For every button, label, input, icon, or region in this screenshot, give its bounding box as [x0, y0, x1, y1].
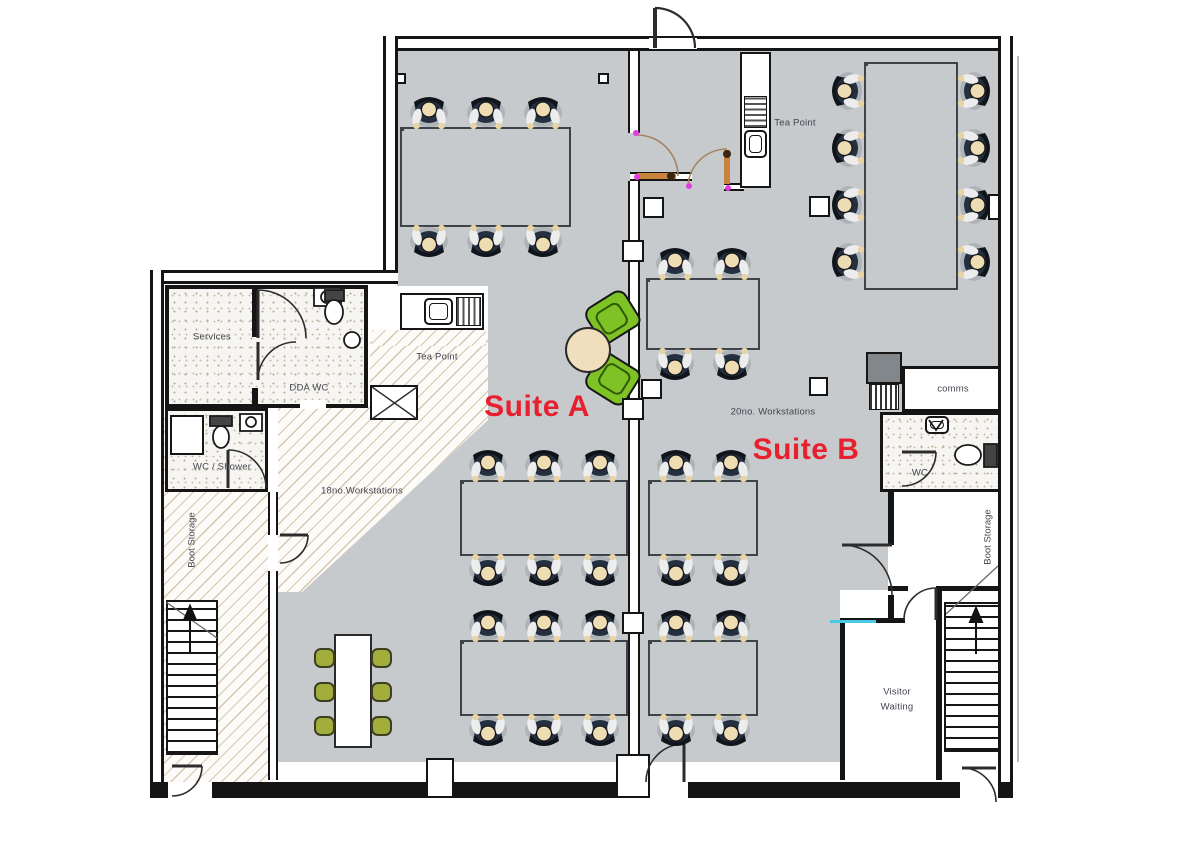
person-at-workstation: [522, 708, 566, 748]
person-icon: [709, 708, 753, 748]
person-at-workstation: [709, 608, 753, 648]
person-at-workstation: [464, 95, 508, 135]
person-at-workstation: [952, 240, 992, 284]
person-icon: [407, 95, 451, 135]
person-at-workstation: [952, 126, 992, 170]
label-suite-b: Suite B: [753, 433, 860, 467]
workstation-desk: [650, 482, 652, 484]
label-boot-storage-left: Boot Storage: [187, 512, 198, 567]
person-icon: [830, 69, 870, 113]
person-icon: [952, 183, 992, 227]
person-icon: [653, 246, 697, 286]
person-icon: [466, 548, 510, 588]
person-icon: [407, 219, 451, 259]
label-workstations-20: 20no. Workstations: [731, 407, 816, 418]
person-icon: [709, 448, 753, 488]
workstation-bank-suite-a-bottom: [460, 640, 628, 716]
workstation-bank-suite-b-right: [864, 62, 958, 290]
person-icon: [830, 183, 870, 227]
person-icon: [522, 448, 566, 488]
person-at-workstation: [952, 69, 992, 113]
person-icon: [578, 548, 622, 588]
workstation-bank-suite-b-top: [646, 278, 760, 350]
person-at-workstation: [654, 608, 698, 648]
person-at-workstation: [654, 708, 698, 748]
label-tea-point-a: Tea Point: [416, 352, 457, 363]
person-icon: [522, 548, 566, 588]
person-at-workstation: [466, 548, 510, 588]
label-workstations-18: 18no.Workstations: [321, 486, 403, 497]
person-icon: [466, 608, 510, 648]
person-at-workstation: [578, 548, 622, 588]
workstation-bank-suite-b-mid: [648, 480, 758, 556]
person-at-workstation: [709, 708, 753, 748]
person-icon: [522, 608, 566, 648]
label-wc: WC: [912, 468, 928, 479]
person-at-workstation: [830, 69, 870, 113]
person-icon: [578, 608, 622, 648]
person-icon: [710, 246, 754, 286]
label-dda-wc: DDA WC: [289, 383, 328, 394]
person-at-workstation: [830, 126, 870, 170]
person-icon: [464, 219, 508, 259]
person-at-workstation: [830, 240, 870, 284]
person-at-workstation: [407, 219, 451, 259]
label-suite-a: Suite A: [484, 390, 590, 424]
person-at-workstation: [952, 183, 992, 227]
person-icon: [653, 342, 697, 382]
person-at-workstation: [709, 548, 753, 588]
label-visitor-line1: Visitor: [883, 687, 911, 698]
person-at-workstation: [466, 708, 510, 748]
person-at-workstation: [522, 608, 566, 648]
person-icon: [654, 708, 698, 748]
person-icon: [710, 342, 754, 382]
person-icon: [654, 608, 698, 648]
person-icon: [830, 240, 870, 284]
person-at-workstation: [709, 448, 753, 488]
person-icon: [466, 448, 510, 488]
person-at-workstation: [466, 448, 510, 488]
person-at-workstation: [710, 342, 754, 382]
person-icon: [578, 708, 622, 748]
person-icon: [522, 708, 566, 748]
person-icon: [521, 95, 565, 135]
label-services: Services: [193, 332, 231, 343]
workstation-bank-suite-a-mid: [460, 480, 628, 556]
person-at-workstation: [407, 95, 451, 135]
person-at-workstation: [522, 448, 566, 488]
workstation-desk: [462, 642, 464, 644]
label-visitor-line2: Waiting: [881, 702, 914, 713]
person-at-workstation: [464, 219, 508, 259]
person-at-workstation: [578, 448, 622, 488]
person-at-workstation: [653, 246, 697, 286]
person-icon: [952, 126, 992, 170]
workstation-desk: [462, 482, 464, 484]
label-tea-point-b: Tea Point: [774, 118, 815, 129]
workstation-desk: [650, 642, 652, 644]
label-wc-shower: WC / Shower: [193, 462, 251, 473]
workstation-bank-suite-b-bottom: [648, 640, 758, 716]
person-at-workstation: [710, 246, 754, 286]
floor-plan: Services DDA WC Tea Point Tea Point WC /…: [0, 0, 1200, 842]
person-at-workstation: [578, 608, 622, 648]
person-icon: [578, 448, 622, 488]
person-at-workstation: [653, 342, 697, 382]
person-icon: [709, 548, 753, 588]
person-at-workstation: [830, 183, 870, 227]
person-icon: [709, 608, 753, 648]
person-at-workstation: [521, 219, 565, 259]
person-icon: [830, 126, 870, 170]
person-icon: [521, 219, 565, 259]
person-icon: [654, 448, 698, 488]
workstation-layer: [0, 0, 1200, 842]
person-at-workstation: [522, 548, 566, 588]
person-icon: [464, 95, 508, 135]
person-icon: [654, 548, 698, 588]
person-icon: [952, 69, 992, 113]
person-at-workstation: [654, 548, 698, 588]
person-icon: [952, 240, 992, 284]
person-at-workstation: [466, 608, 510, 648]
label-comms: comms: [937, 384, 969, 395]
label-boot-storage-right: Boot Storage: [983, 509, 994, 564]
workstation-desk: [648, 280, 650, 282]
workstation-bank-suite-a-top: [400, 127, 571, 227]
person-at-workstation: [521, 95, 565, 135]
workstation-desk: [402, 129, 404, 131]
person-at-workstation: [578, 708, 622, 748]
workstation-desk: [866, 64, 868, 66]
person-at-workstation: [654, 448, 698, 488]
person-icon: [466, 708, 510, 748]
